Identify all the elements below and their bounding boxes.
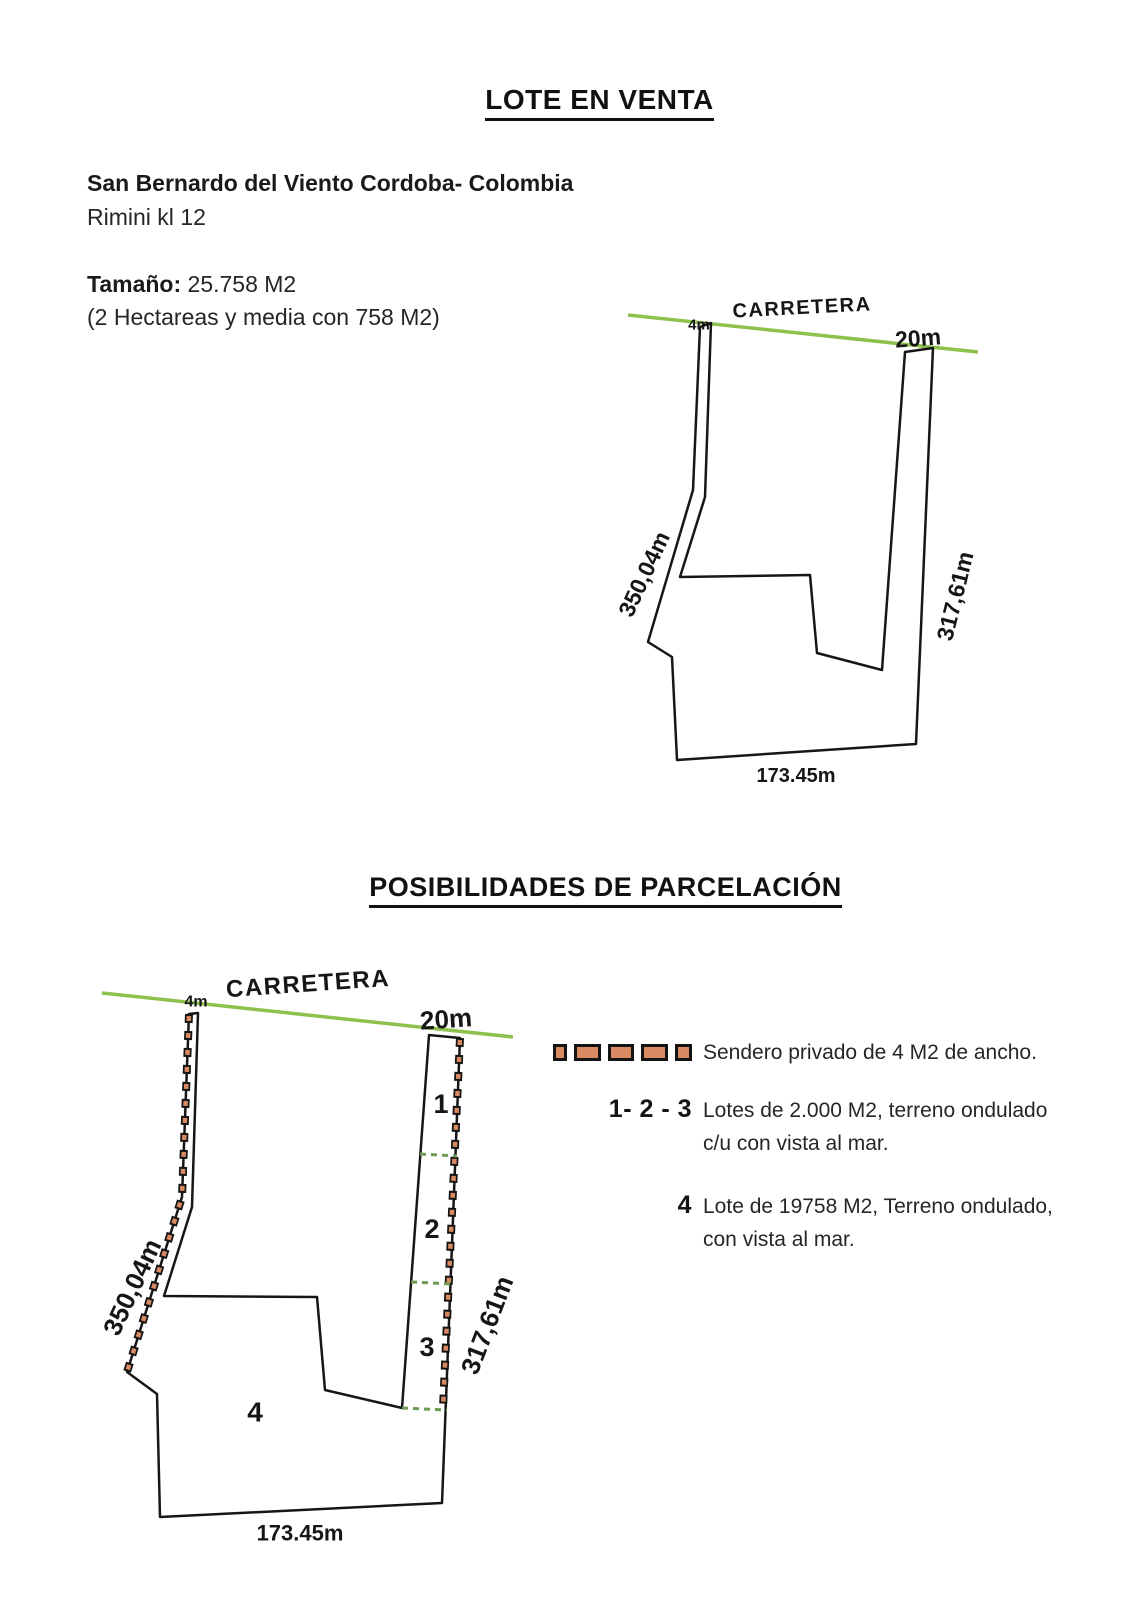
diagram-lot-overview: CARRETERA 4m 20m 350,04m 317,61m 173.45m [600, 283, 1000, 795]
legend-lot4-text: Lote de 19758 M2, Terreno ondulado, con … [703, 1190, 1053, 1256]
width-4m-label: 4m [184, 994, 207, 1011]
sendero-dash-icon [641, 1044, 667, 1061]
legend-lots123-line2: c/u con vista al mar. [703, 1127, 1047, 1160]
bottom-173m-label: 173.45m [257, 1521, 344, 1546]
size-block: Tamaño: 25.758 M2 (2 Hectareas y media c… [87, 268, 440, 334]
width-20m-label: 20m [894, 323, 942, 352]
parcel-1-label: 1 [433, 1089, 448, 1119]
sendero-dash-icon [608, 1044, 634, 1061]
legend-lot4-line1: Lote de 19758 M2, Terreno ondulado, [703, 1190, 1053, 1223]
side-317m-label: 317,61m [931, 549, 978, 643]
size-value: 25.758 M2 [188, 271, 297, 297]
location-line2: Rimini kl 12 [87, 200, 573, 234]
title-wrap: LOTE EN VENTA [34, 84, 1131, 121]
side-317m-label: 317,61m [455, 1272, 520, 1379]
document-page: LOTE EN VENTA San Bernardo del Viento Co… [0, 0, 1131, 1600]
legend-row-lot-4: 4 Lote de 19758 M2, Terreno ondulado, co… [553, 1190, 1053, 1256]
legend-lots123-text: Lotes de 2.000 M2, terreno ondulado c/u … [703, 1094, 1047, 1160]
bottom-173m-label: 173.45m [757, 765, 836, 787]
parcel-divider-3-4 [402, 1408, 447, 1410]
location-line1: San Bernardo del Viento Cordoba- Colombi… [87, 166, 573, 200]
parcel-3-label: 3 [419, 1332, 434, 1362]
carretera-label: CARRETERA [225, 965, 391, 1003]
subtitle-wrap: POSIBILIDADES DE PARCELACIÓN [40, 872, 1131, 908]
parcel-2-label: 2 [424, 1214, 439, 1244]
carretera-label: CARRETERA [732, 293, 872, 322]
legend-sendero-text: Sendero privado de 4 M2 de ancho. [703, 1036, 1037, 1069]
sendero-dashed-line-left [127, 1014, 189, 1372]
sendero-dash-icon [553, 1044, 567, 1061]
sendero-dash-icon [553, 1044, 692, 1061]
parcel-divider-1-2 [420, 1154, 457, 1156]
legend-lots123-line1: Lotes de 2.000 M2, terreno ondulado [703, 1094, 1047, 1127]
section2-title: POSIBILIDADES DE PARCELACIÓN [369, 872, 842, 908]
sendero-dash-icon [574, 1044, 600, 1061]
legend-lots123-label: 1- 2 - 3 [553, 1094, 692, 1160]
legend-lot4-line2: con vista al mar. [703, 1223, 1053, 1256]
size-label: Tamaño: [87, 271, 181, 297]
width-4m-label: 4m [688, 317, 710, 334]
width-20m-label: 20m [419, 1002, 473, 1036]
plot-outline [127, 1013, 460, 1517]
sendero-dash-icon [675, 1044, 692, 1061]
page-title: LOTE EN VENTA [485, 84, 713, 121]
side-350m-label: 350,04m [613, 527, 675, 620]
size-note: (2 Hectareas y media con 758 M2) [87, 301, 440, 334]
legend-row-lots-123: 1- 2 - 3 Lotes de 2.000 M2, terreno ondu… [553, 1094, 1047, 1160]
parcel-divider-2-3 [411, 1282, 453, 1284]
location-block: San Bernardo del Viento Cordoba- Colombi… [87, 166, 573, 234]
plot-outline [648, 323, 933, 760]
diagram-parcelacion: CARRETERA 4m 20m 350,04m 317,61m 173.45m… [85, 953, 530, 1560]
legend-row-sendero: Sendero privado de 4 M2 de ancho. [553, 1036, 1037, 1069]
size-line: Tamaño: 25.758 M2 [87, 268, 440, 301]
legend-lot4-label: 4 [553, 1190, 692, 1256]
parcel-4-label: 4 [247, 1397, 263, 1428]
